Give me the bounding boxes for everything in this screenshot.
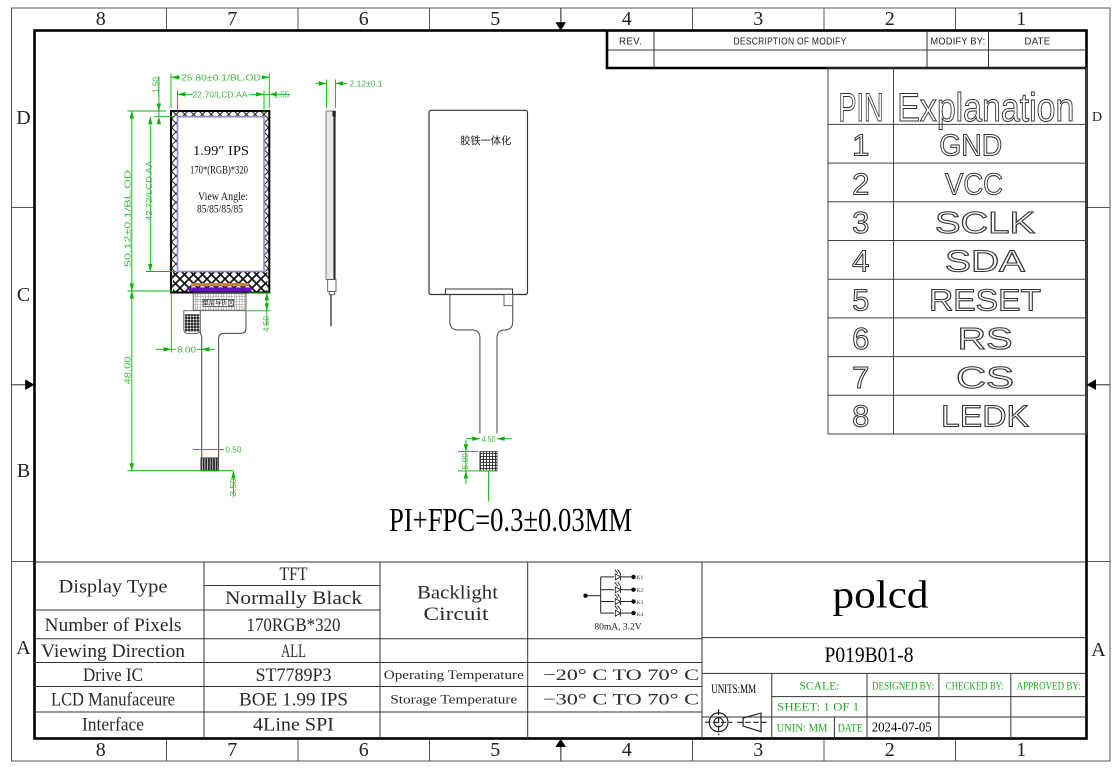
svg-text:K1: K1: [637, 575, 644, 581]
svg-text:2.12±0.1: 2.12±0.1: [350, 79, 383, 89]
svg-text:4: 4: [852, 244, 869, 279]
svg-text:22.70/LCD.AA: 22.70/LCD.AA: [193, 89, 248, 99]
svg-text:−20° C TO 70° C: −20° C TO 70° C: [543, 667, 699, 684]
svg-text:170*(RGB)*320: 170*(RGB)*320: [190, 163, 248, 177]
svg-text:2024-07-05: 2024-07-05: [872, 721, 932, 736]
svg-text:6: 6: [359, 8, 369, 30]
svg-text:UNIN: MM: UNIN: MM: [777, 721, 828, 735]
svg-text:2: 2: [852, 166, 869, 201]
svg-text:1.55: 1.55: [274, 89, 289, 99]
svg-text:5.00: 5.00: [460, 453, 470, 469]
svg-text:A: A: [16, 637, 31, 659]
svg-text:Normally Black: Normally Black: [225, 588, 363, 609]
svg-text:SCALE:: SCALE:: [799, 679, 839, 693]
svg-text:85/85/85/85: 85/85/85/85: [197, 204, 243, 216]
svg-text:RS: RS: [958, 321, 1013, 356]
svg-text:Circuit: Circuit: [424, 604, 490, 625]
svg-text:7: 7: [227, 8, 237, 30]
svg-text:SCLK: SCLK: [935, 205, 1035, 240]
svg-text:DATE: DATE: [838, 721, 863, 735]
svg-text:A: A: [1091, 639, 1106, 661]
svg-text:CHECKED BY:: CHECKED BY:: [946, 679, 1004, 693]
svg-text:1.50: 1.50: [151, 77, 161, 93]
svg-text:View Angle:: View Angle:: [198, 191, 248, 203]
svg-text:GND: GND: [939, 128, 1002, 163]
svg-text:D: D: [16, 107, 30, 129]
svg-text:胶铁一体化: 胶铁一体化: [460, 134, 511, 147]
svg-text:Interface: Interface: [82, 714, 144, 735]
svg-text:Display Type: Display Type: [59, 576, 168, 597]
svg-text:42.72/LCD.AA: 42.72/LCD.AA: [144, 161, 154, 221]
svg-text:Operating Temperature: Operating Temperature: [384, 667, 524, 682]
svg-text:4.50: 4.50: [261, 316, 271, 332]
svg-text:7: 7: [852, 360, 869, 395]
svg-text:DESCRIPTION OF MODIFY: DESCRIPTION OF MODIFY: [734, 37, 847, 48]
svg-text:5: 5: [490, 8, 500, 30]
svg-text:6: 6: [852, 321, 869, 356]
svg-text:4: 4: [622, 739, 632, 761]
svg-text:K3: K3: [637, 600, 644, 606]
svg-text:4: 4: [622, 8, 632, 30]
svg-text:4.50: 4.50: [482, 434, 496, 444]
svg-text:3.50: 3.50: [228, 478, 238, 496]
svg-text:8: 8: [96, 8, 106, 30]
svg-text:Explanation: Explanation: [897, 86, 1074, 130]
svg-text:Number of Pixels: Number of Pixels: [45, 615, 182, 636]
svg-text:Viewing Direction: Viewing Direction: [41, 641, 186, 662]
svg-text:PIN: PIN: [839, 86, 884, 130]
svg-text:VCC: VCC: [945, 166, 1003, 201]
svg-text:CS: CS: [956, 360, 1014, 395]
svg-text:2: 2: [885, 8, 895, 30]
svg-text:PI+FPC=0.3±0.03MM: PI+FPC=0.3±0.03MM: [389, 502, 632, 539]
svg-text:3: 3: [753, 739, 763, 761]
svg-text:DATE: DATE: [1025, 37, 1051, 48]
svg-text:3: 3: [753, 8, 763, 30]
svg-text:6: 6: [359, 739, 369, 761]
svg-text:MODIFY BY:: MODIFY BY:: [931, 37, 986, 48]
svg-text:−30° C TO 70° C: −30° C TO 70° C: [543, 692, 699, 709]
svg-text:48.00: 48.00: [123, 356, 133, 384]
svg-text:P019B01-8: P019B01-8: [825, 642, 914, 667]
svg-text:D: D: [1092, 110, 1102, 125]
svg-text:C: C: [17, 284, 30, 306]
svg-text:RESET: RESET: [929, 282, 1041, 317]
svg-text:8: 8: [96, 739, 106, 761]
svg-text:ST7789P3: ST7789P3: [256, 665, 332, 686]
svg-text:DESIGNED BY:: DESIGNED BY:: [872, 679, 934, 693]
svg-text:ALL: ALL: [281, 641, 306, 662]
svg-text:UNITS:MM: UNITS:MM: [711, 681, 756, 696]
svg-text:1.99″ IPS: 1.99″ IPS: [193, 144, 249, 159]
svg-text:1: 1: [1016, 8, 1026, 30]
svg-text:K4: K4: [637, 612, 644, 618]
svg-text:3: 3: [852, 205, 869, 240]
svg-text:1: 1: [1016, 739, 1026, 761]
svg-text:5: 5: [490, 739, 500, 761]
svg-text:25.80±0.1/BL.OD: 25.80±0.1/BL.OD: [181, 72, 261, 82]
svg-text:TFT: TFT: [280, 564, 308, 585]
svg-text:Backlight: Backlight: [417, 583, 499, 604]
svg-text:1: 1: [852, 128, 869, 163]
svg-text:LCD Manufaceure: LCD Manufaceure: [51, 690, 175, 711]
svg-text:7: 7: [227, 739, 237, 761]
svg-text:2: 2: [885, 739, 895, 761]
svg-text:Storage Temperature: Storage Temperature: [390, 692, 517, 707]
svg-text:50.12±0.1/BL.OD: 50.12±0.1/BL.OD: [123, 170, 133, 267]
svg-text:80mA, 3.2V: 80mA, 3.2V: [594, 623, 641, 633]
svg-text:8: 8: [852, 399, 869, 434]
svg-text:8.00: 8.00: [177, 344, 196, 354]
svg-text:0.50: 0.50: [225, 445, 241, 455]
svg-text:BOE 1.99 IPS: BOE 1.99 IPS: [239, 690, 348, 711]
svg-text:LEDK: LEDK: [941, 399, 1029, 434]
svg-text:单层导折区: 单层导折区: [203, 299, 234, 307]
svg-text:170RGB*320: 170RGB*320: [247, 615, 341, 636]
svg-text:K2: K2: [637, 588, 644, 594]
svg-text:APPROVED BY:: APPROVED BY:: [1017, 679, 1081, 693]
svg-text:SDA: SDA: [945, 244, 1025, 279]
svg-text:4Line SPI: 4Line SPI: [253, 714, 334, 735]
svg-text:Drive IC: Drive IC: [83, 665, 143, 686]
svg-text:5: 5: [852, 282, 869, 317]
svg-text:polcd: polcd: [833, 574, 930, 617]
svg-text:SHEET: 1 OF 1: SHEET: 1 OF 1: [777, 700, 859, 714]
svg-text:REV.: REV.: [619, 37, 642, 48]
svg-text:B: B: [17, 460, 30, 482]
